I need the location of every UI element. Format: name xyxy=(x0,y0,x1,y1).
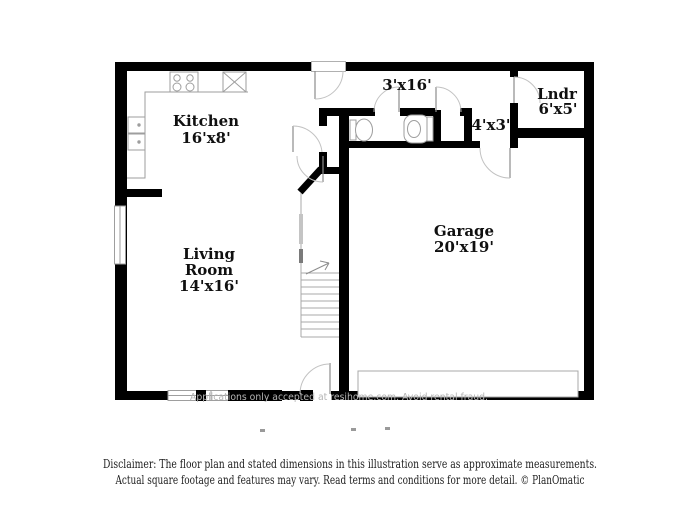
garage-entry-door-arc xyxy=(480,148,510,178)
stairs-wall-patch xyxy=(299,249,303,263)
hallway-dims: 3'x16' xyxy=(382,76,431,94)
closet-door-arc xyxy=(436,87,461,112)
toilet-tank xyxy=(427,117,433,141)
bath-fixtures xyxy=(350,115,433,143)
watermark-text: Applications only accepted at resihome.c… xyxy=(190,392,488,403)
wall-laundry-left xyxy=(510,103,518,148)
toilet-icon xyxy=(356,119,373,141)
watermark: Applications only accepted at resihome.c… xyxy=(190,392,488,432)
closet-dims: 4'x3' xyxy=(471,116,510,134)
wall-corridor-a xyxy=(319,108,375,116)
floor-plan-page: Applications only accepted at resihome.c… xyxy=(0,0,700,509)
entry-door-arc xyxy=(315,71,343,99)
wall-laundry-left-stub xyxy=(510,71,518,77)
front-door-arc xyxy=(300,364,330,394)
wall-kitchen-stub xyxy=(115,189,162,197)
toilet-bowl xyxy=(408,121,421,138)
stove-burner xyxy=(173,83,181,91)
stairs xyxy=(299,193,339,337)
watermark-mark xyxy=(351,428,356,431)
wall-right xyxy=(584,62,594,400)
double-sink-icon xyxy=(128,134,145,150)
floor-plan-svg: Applications only accepted at resihome.c… xyxy=(0,0,700,509)
stove-burner xyxy=(187,75,193,81)
stairs-direction-arrow xyxy=(306,261,329,274)
stove-burner xyxy=(186,83,194,91)
wall-laundry-bottom xyxy=(518,128,594,138)
sink-drain xyxy=(138,124,140,126)
kitchen-dims: 16'x8' xyxy=(181,129,230,147)
stairs-wall-patch xyxy=(299,214,303,244)
wall-garage-left xyxy=(339,108,349,393)
disclaimer-line1: Disclaimer: The floor plan and stated di… xyxy=(103,456,597,471)
windows xyxy=(115,206,255,401)
disclaimer-line2: Actual square footage and features may v… xyxy=(115,472,585,487)
sink-drain xyxy=(138,141,140,143)
disclaimer: Disclaimer: The floor plan and stated di… xyxy=(103,456,597,487)
living-room-dims: 14'x16' xyxy=(179,277,239,295)
double-sink-icon xyxy=(128,117,145,133)
wall-top xyxy=(115,62,594,71)
stove-burner xyxy=(174,75,180,81)
watermark-mark xyxy=(385,427,390,430)
garage-dims: 20'x19' xyxy=(434,238,494,256)
kitchen-label: Kitchen xyxy=(173,112,239,130)
kitchen-door-arc xyxy=(293,126,322,152)
entry-door-frame xyxy=(312,62,346,72)
watermark-mark xyxy=(260,429,265,432)
laundry-dims: 6'x5' xyxy=(538,100,577,118)
